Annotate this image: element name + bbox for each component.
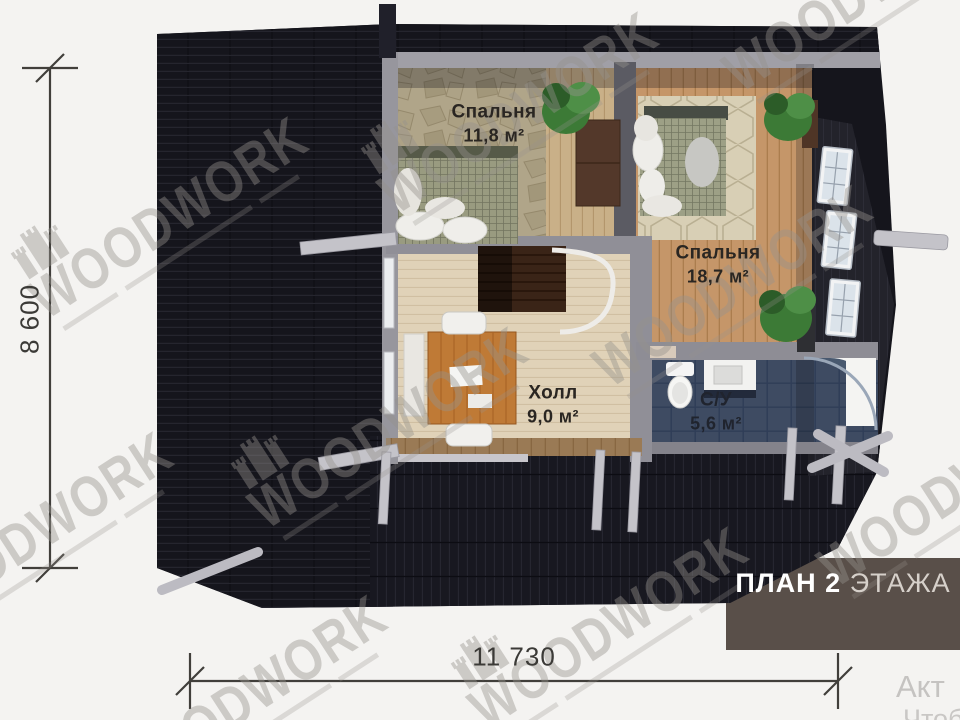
woodwork-watermark: WOODWORK (0, 0, 451, 337)
castle-logo-icon (224, 424, 294, 492)
castle-logo-icon (354, 109, 424, 177)
watermark-text: WOODWORK (809, 376, 960, 597)
watermark-layer: WOODWORK WOODWORK WOODWORK WOODWORK WOOD… (0, 0, 960, 720)
castle-logo-icon (4, 214, 74, 282)
floor-plan-canvas: WOODWORK WOODWORK WOODWORK WOODWORK WOOD… (0, 0, 960, 720)
watermark-subtitle-line (142, 554, 531, 720)
watermark-subtitle-line (412, 0, 801, 227)
watermark-subtitle-line (62, 76, 451, 332)
woodwork-watermark: WOODWORK (219, 201, 672, 548)
watermark-text: WOODWORK (20, 108, 317, 329)
watermark-text: WOODWORK (370, 3, 667, 224)
woodwork-watermark: WOODWORK (809, 292, 960, 605)
watermark-subtitle-line (0, 391, 316, 647)
castle-logo-icon (444, 624, 514, 692)
watermark-subtitle-line (852, 344, 960, 600)
woodwork-watermark: WOODWORK (714, 0, 960, 111)
watermark-subtitle-line (757, 0, 960, 105)
woodwork-watermark: WOODWORK (99, 502, 530, 720)
woodwork-watermark: WOODWORK (439, 401, 892, 720)
woodwork-watermark: WOODWORK (584, 92, 960, 405)
watermark-text: WOODWORK (0, 423, 183, 644)
watermark-subtitle-line (627, 144, 960, 400)
woodwork-watermark: WOODWORK (0, 306, 316, 653)
watermark-text: WOODWORK (460, 518, 757, 720)
watermark-text: WOODWORK (99, 586, 396, 720)
watermark-text: WOODWORK (240, 318, 537, 539)
watermark-subtitle-line (502, 486, 891, 720)
watermark-subtitle-line (282, 286, 671, 542)
watermark-text: WOODWORK (584, 176, 881, 397)
watermark-text: WOODWORK (714, 0, 960, 102)
woodwork-watermark: WOODWORK (349, 0, 802, 232)
